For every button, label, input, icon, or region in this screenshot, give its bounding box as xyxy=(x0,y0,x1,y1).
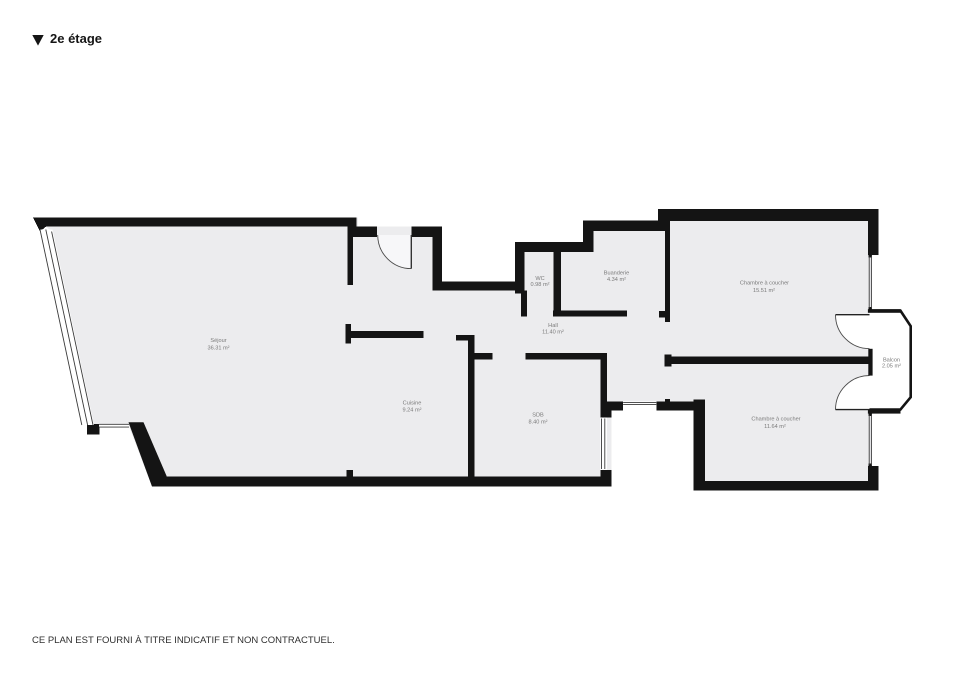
svg-text:9.24 m²: 9.24 m² xyxy=(403,408,422,414)
svg-text:15.51 m²: 15.51 m² xyxy=(753,288,775,294)
svg-text:Chambre à coucher: Chambre à coucher xyxy=(740,280,789,286)
svg-text:Buanderie: Buanderie xyxy=(604,271,630,277)
svg-text:Balcon: Balcon xyxy=(883,357,900,363)
svg-text:36.31 m²: 36.31 m² xyxy=(207,345,229,351)
svg-text:Chambre à coucher: Chambre à coucher xyxy=(751,417,800,423)
svg-text:11.64 m²: 11.64 m² xyxy=(764,424,786,430)
svg-text:WC: WC xyxy=(535,276,544,282)
svg-text:Cuisine: Cuisine xyxy=(403,401,422,407)
svg-text:Séjour: Séjour xyxy=(210,338,226,344)
svg-text:SDB: SDB xyxy=(532,413,544,419)
svg-text:2.05 m²: 2.05 m² xyxy=(882,364,901,370)
svg-text:8.40 m²: 8.40 m² xyxy=(529,420,548,426)
svg-text:11.40 m²: 11.40 m² xyxy=(542,329,564,335)
svg-text:0.98 m²: 0.98 m² xyxy=(531,282,550,288)
svg-text:4.34 m²: 4.34 m² xyxy=(607,277,626,283)
svg-text:Hall: Hall xyxy=(548,323,558,329)
